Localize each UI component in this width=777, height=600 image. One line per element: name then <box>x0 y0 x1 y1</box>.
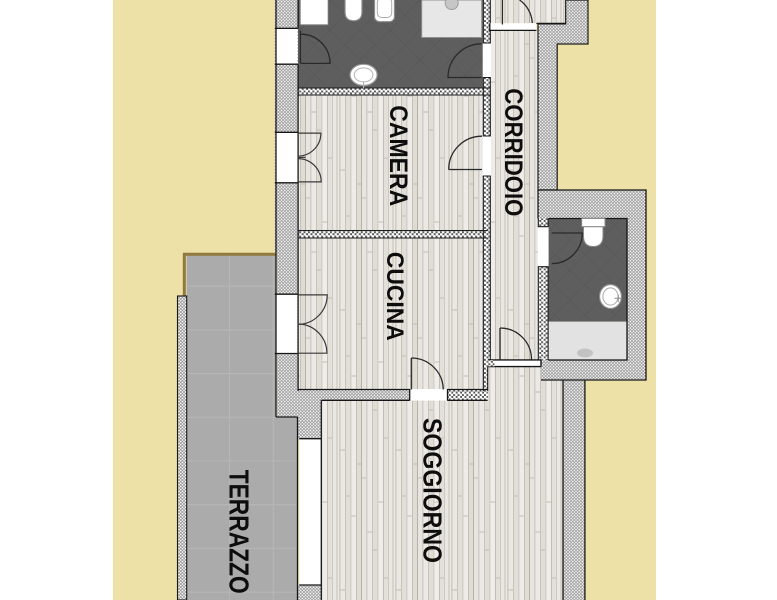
svg-text:SOGGIORNO: SOGGIORNO <box>418 418 446 563</box>
svg-text:CUCINA: CUCINA <box>381 252 408 341</box>
svg-text:CORRIDOIO: CORRIDOIO <box>499 88 527 216</box>
svg-text:CAMERA: CAMERA <box>384 105 412 206</box>
svg-text:TERRAZZO: TERRAZZO <box>224 470 255 594</box>
